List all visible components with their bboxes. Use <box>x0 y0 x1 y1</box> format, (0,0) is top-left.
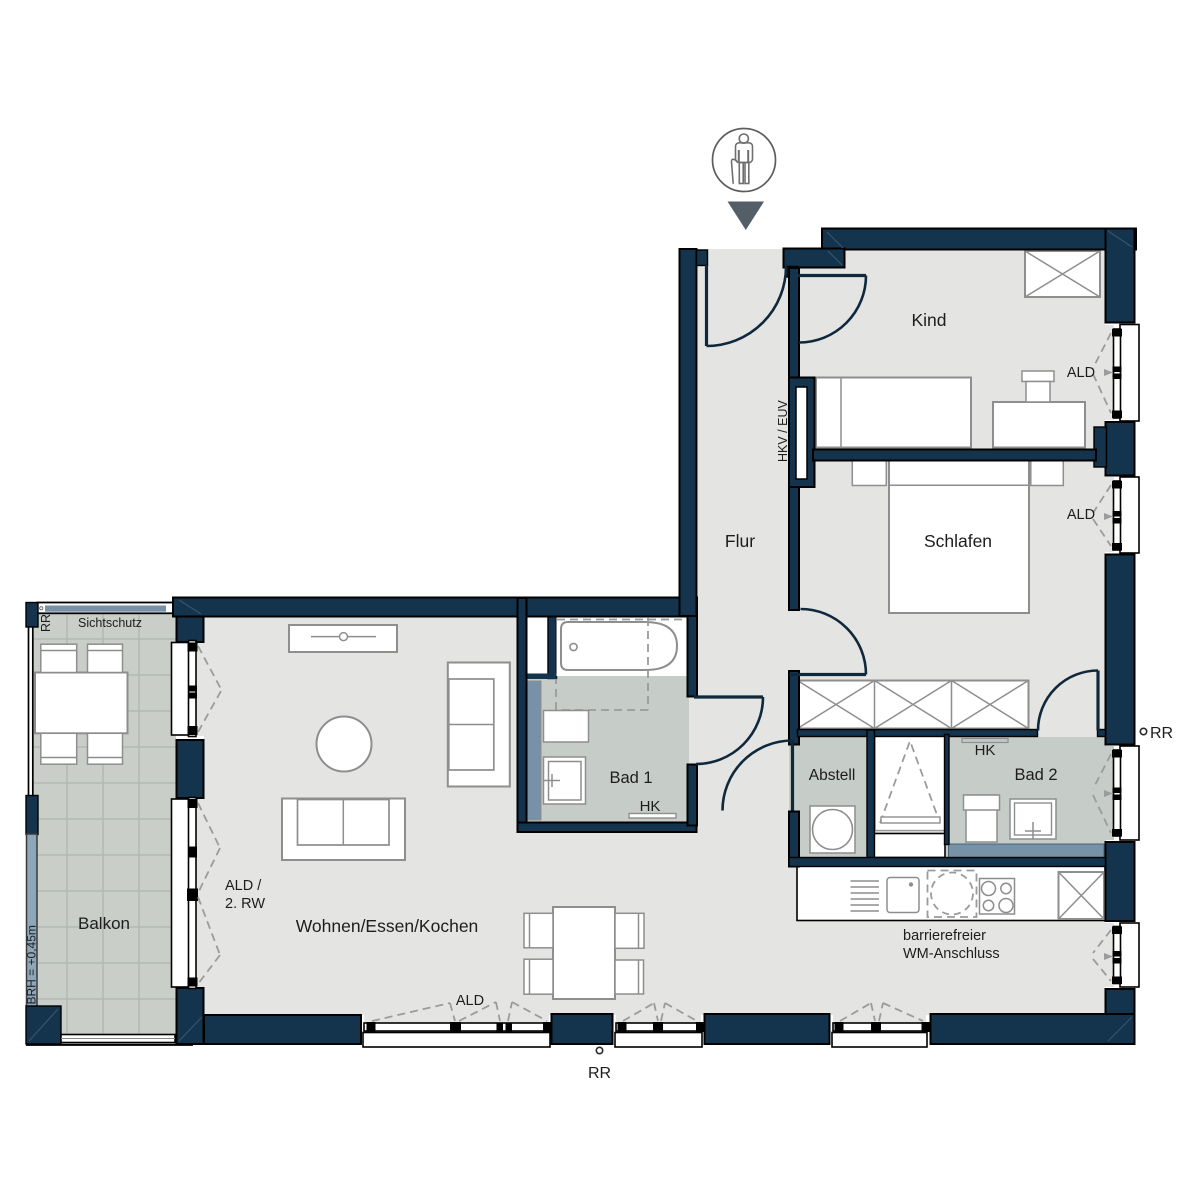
svg-text:Balkon: Balkon <box>78 914 130 933</box>
svg-text:HKV / EUV: HKV / EUV <box>776 400 790 462</box>
svg-text:Abstell: Abstell <box>809 767 856 784</box>
svg-text:WM-Anschluss: WM-Anschluss <box>903 946 1000 962</box>
svg-text:Schlafen: Schlafen <box>924 531 992 551</box>
svg-text:HK: HK <box>975 742 996 759</box>
svg-text:ALD: ALD <box>1067 365 1095 381</box>
svg-text:ALD: ALD <box>1067 507 1095 523</box>
svg-text:ALD: ALD <box>456 993 484 1009</box>
svg-text:RR: RR <box>588 1065 611 1082</box>
svg-text:2. RW: 2. RW <box>225 896 265 912</box>
svg-text:barrierefreier: barrierefreier <box>903 928 986 944</box>
svg-text:RR: RR <box>1150 725 1173 742</box>
svg-text:Kind: Kind <box>911 310 946 330</box>
svg-text:Flur: Flur <box>725 531 755 551</box>
svg-text:BRH = +0,45m: BRH = +0,45m <box>25 925 39 1004</box>
svg-text:Bad 2: Bad 2 <box>1014 766 1057 784</box>
svg-text:RR: RR <box>39 614 53 632</box>
svg-text:ALD /: ALD / <box>225 878 262 894</box>
svg-text:HK: HK <box>640 798 661 815</box>
svg-text:Sichtschutz: Sichtschutz <box>78 616 142 630</box>
svg-text:Wohnen/Essen/Kochen: Wohnen/Essen/Kochen <box>296 916 479 936</box>
svg-text:Bad 1: Bad 1 <box>609 769 652 787</box>
